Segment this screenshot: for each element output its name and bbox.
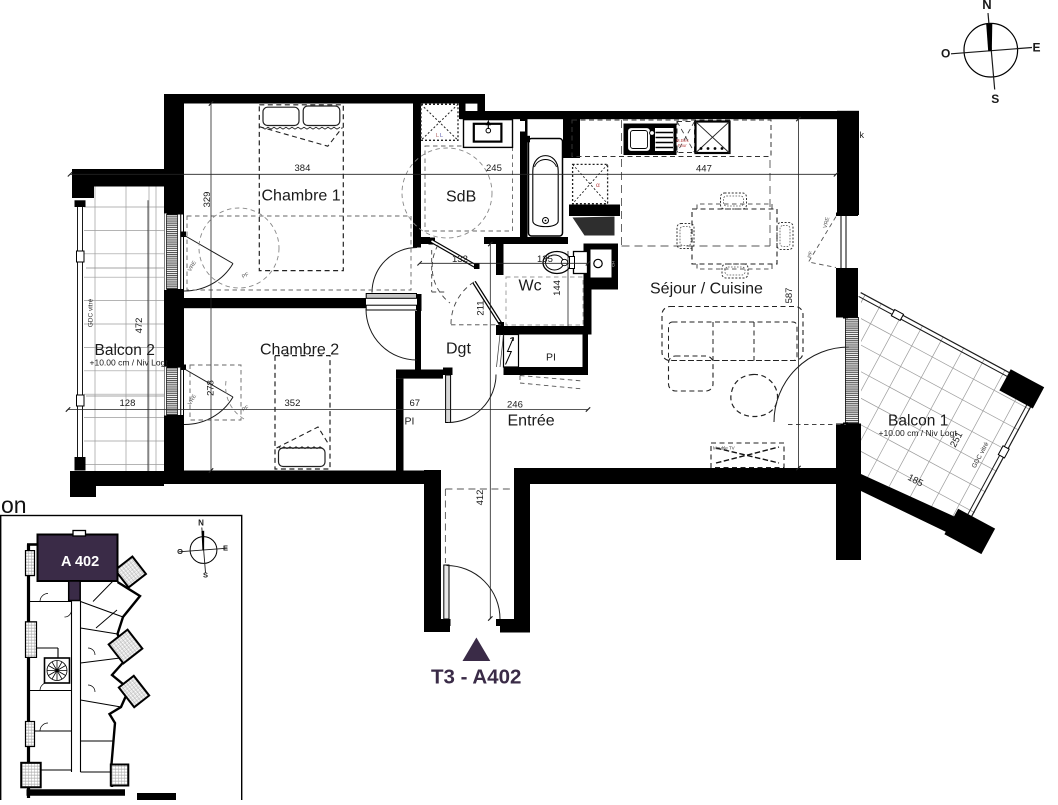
svg-text:SdB: SdB <box>446 189 476 206</box>
svg-text:384: 384 <box>295 163 311 174</box>
svg-text:α: α <box>596 182 600 189</box>
svg-text:+10.00 cm / Niv Logt: +10.00 cm / Niv Logt <box>90 358 169 368</box>
svg-text:Chambre 2: Chambre 2 <box>260 342 339 359</box>
svg-text:N: N <box>982 0 991 12</box>
svg-text:447: 447 <box>696 163 712 174</box>
svg-text:L: L <box>436 133 439 139</box>
svg-text:S: S <box>203 571 208 580</box>
svg-text:Balcon 1: Balcon 1 <box>888 413 948 430</box>
svg-text:412: 412 <box>475 490 486 506</box>
svg-text:A 402: A 402 <box>61 554 99 570</box>
svg-text:128: 128 <box>120 398 136 409</box>
svg-text:k: k <box>860 130 865 140</box>
svg-text:278: 278 <box>206 380 217 396</box>
svg-text:PI: PI <box>405 416 415 428</box>
svg-text:T3 - A402: T3 - A402 <box>431 666 521 689</box>
svg-text:Entrée: Entrée <box>508 413 555 430</box>
svg-text:Séjour / Cuisine: Séjour / Cuisine <box>650 281 763 298</box>
svg-text:135: 135 <box>537 254 553 265</box>
svg-text:+10.00 cm / Niv Logt: +10.00 cm / Niv Logt <box>879 428 958 438</box>
svg-text:PI: PI <box>546 352 556 364</box>
svg-text:GDC vitré: GDC vitré <box>88 298 95 327</box>
svg-text:67: 67 <box>410 398 421 409</box>
svg-text:E: E <box>223 544 228 553</box>
svg-text:S: S <box>991 92 999 106</box>
svg-text:245: 245 <box>486 163 502 174</box>
svg-text:Chambre 1: Chambre 1 <box>262 188 341 205</box>
svg-text:N: N <box>198 519 204 528</box>
svg-text:O: O <box>177 547 183 556</box>
svg-text:329: 329 <box>202 192 213 208</box>
svg-text:Dgt: Dgt <box>446 341 471 358</box>
svg-text:352: 352 <box>285 398 301 409</box>
svg-text:Meuble TV: Meuble TV <box>713 446 735 451</box>
svg-text:on: on <box>1 492 27 518</box>
svg-text:CH: CH <box>611 261 616 267</box>
svg-text:246: 246 <box>507 399 523 410</box>
svg-text:Four: Four <box>678 143 687 148</box>
svg-text:Balcon 2: Balcon 2 <box>95 342 155 359</box>
svg-text:L: L <box>440 133 443 139</box>
svg-text:Wc: Wc <box>519 278 542 295</box>
svg-text:472: 472 <box>134 318 145 334</box>
svg-text:211: 211 <box>476 300 487 315</box>
svg-text:587: 587 <box>784 288 795 304</box>
svg-text:E: E <box>1032 41 1040 55</box>
svg-text:O: O <box>941 47 950 61</box>
svg-text:144: 144 <box>552 280 563 296</box>
svg-text:132: 132 <box>452 254 468 265</box>
